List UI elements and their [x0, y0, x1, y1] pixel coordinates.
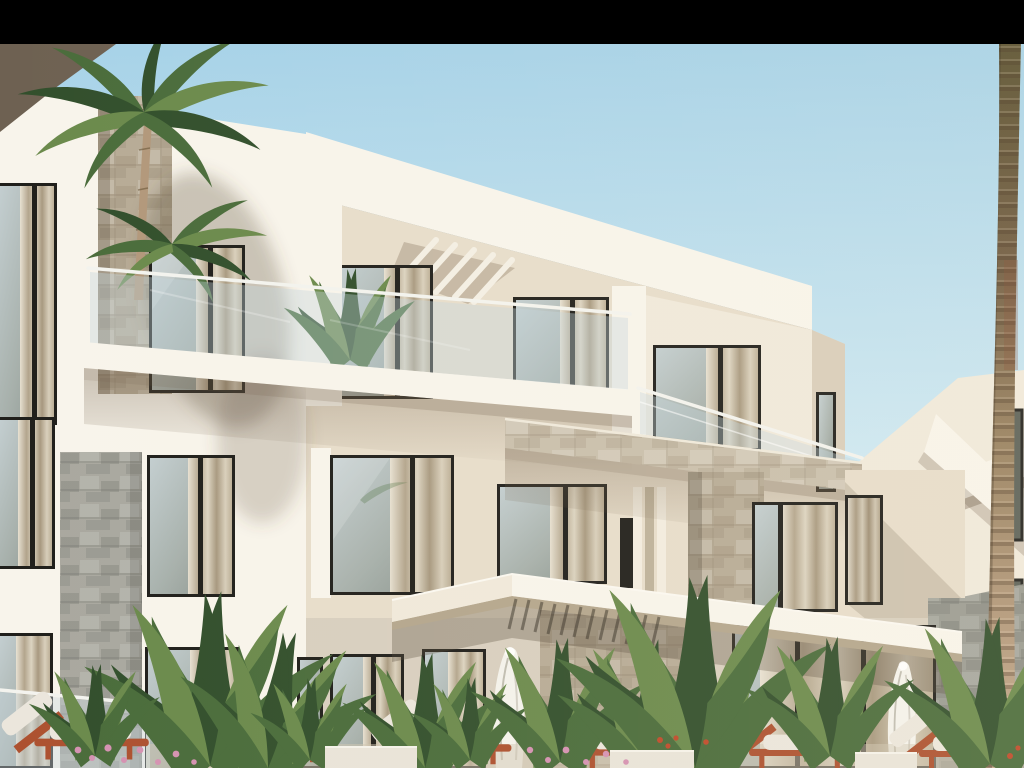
sunlight-overlay	[0, 40, 1024, 768]
architectural-render-image: 3D architectural rendering of a modern w…	[0, 0, 1024, 768]
letterbox-bar	[0, 0, 1024, 44]
render-canvas: 3D architectural rendering of a modern w…	[0, 0, 1024, 768]
